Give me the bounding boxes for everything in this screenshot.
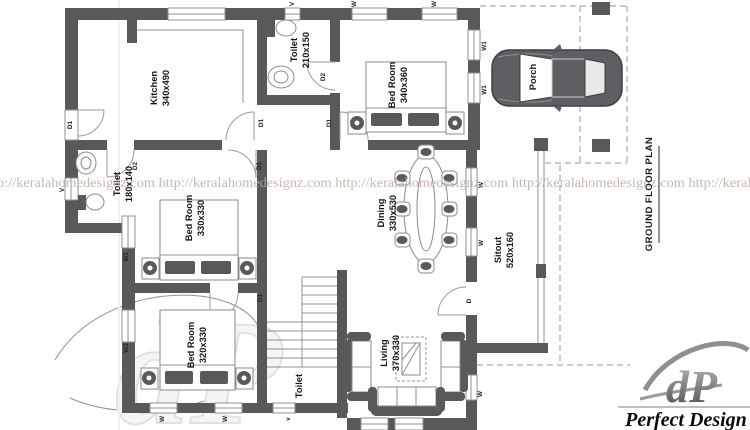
svg-text:W: W [477, 390, 484, 397]
svg-text:D1: D1 [257, 293, 264, 302]
svg-text:W: W [431, 0, 438, 7]
sofa-single-right [441, 332, 468, 401]
label-bedroom-bottom: Bed Room [186, 322, 196, 369]
window-living-bottom-2 [395, 418, 423, 430]
watermark-url-text: http://keralahomedesignz.com http://kera… [0, 175, 750, 190]
brand-logo: dP Perfect Design [618, 344, 750, 430]
svg-text:330x330: 330x330 [196, 200, 206, 236]
tag-d2: D2 [320, 72, 327, 81]
svg-text:340x360: 340x360 [399, 67, 409, 103]
door-bedroom-mid [228, 150, 256, 178]
window-porchwall-1 [468, 30, 480, 60]
car-roof [552, 59, 585, 97]
sofa-three-seat [368, 387, 445, 416]
window-bedroom-bottom-left [122, 310, 135, 342]
window-bedroom-top-2 [422, 8, 457, 20]
vent-stairs-toilet [273, 403, 295, 413]
label-dining: Dining [376, 198, 386, 227]
window-living-bottom-1 [361, 418, 388, 430]
svg-text:320x330: 320x330 [198, 327, 208, 363]
label-toilet-top: Toilet [289, 38, 299, 62]
floor-plan-canvas: dP [0, 0, 750, 430]
svg-text:W: W [222, 415, 229, 422]
car-rear-window [585, 59, 605, 97]
living-sofa-set [344, 332, 468, 416]
brand-name: Perfect Design [624, 409, 747, 430]
svg-text:210x150: 210x150 [301, 32, 311, 68]
plan-title: GROUND FLOOR PLAN [644, 137, 655, 251]
svg-text:W: W [159, 415, 166, 422]
svg-text:330x530: 330x530 [388, 195, 398, 231]
tag-v-lower: v [285, 417, 292, 421]
dining-table-set [395, 145, 457, 273]
svg-text:340x490: 340x490 [161, 70, 171, 106]
svg-text:D2: D2 [132, 161, 139, 170]
tag-d1: D1 [67, 120, 74, 129]
window-bedroom-mid-left [122, 216, 135, 248]
label-porch: Porch [528, 64, 538, 91]
label-toilet-stairs: Toilet [294, 374, 304, 398]
tag-d: D [466, 298, 473, 303]
plan-title-block: GROUND FLOOR PLAN [644, 137, 659, 251]
window-bedroom-bottom-2 [215, 403, 242, 413]
vent-toilet-top [285, 8, 300, 20]
door-kitchen-hall [226, 112, 254, 140]
door-main-entry [438, 287, 466, 315]
label-living: Living [379, 339, 389, 367]
svg-text:W1: W1 [481, 85, 488, 95]
window-porchwall-2 [468, 73, 480, 103]
svg-text:520x160: 520x160 [505, 232, 515, 268]
svg-text:370x330: 370x330 [391, 335, 401, 371]
car-mirror-bottom [553, 106, 562, 112]
sofa-single-left [344, 332, 371, 401]
tag-w1: W1 [481, 41, 488, 51]
window-dining-right-2 [466, 228, 477, 256]
svg-text:W: W [478, 239, 485, 246]
label-bedroom-mid: Bed Room [184, 195, 194, 242]
car-top-view [492, 44, 622, 112]
tag-w2: W2 [123, 343, 130, 353]
brand-monogram: dP [666, 361, 718, 412]
svg-text:D1: D1 [258, 118, 265, 127]
tag-v-upper: V [289, 1, 296, 6]
window-bedroom-top-1 [352, 8, 387, 20]
window-kitchen-top [168, 8, 225, 20]
window-bedroom-bottom-1 [150, 403, 177, 413]
label-bedroom-top: Bed Room [387, 62, 397, 109]
svg-text:D1: D1 [256, 161, 263, 170]
label-sitout: Sitout [493, 237, 503, 263]
svg-text:W1: W1 [123, 252, 130, 262]
floor-plan-drawing: dP [0, 0, 750, 430]
tag-w: W [351, 0, 358, 7]
label-kitchen: Kitchen [149, 71, 159, 105]
car-mirror-top [553, 44, 562, 50]
svg-text:D1: D1 [326, 118, 333, 127]
